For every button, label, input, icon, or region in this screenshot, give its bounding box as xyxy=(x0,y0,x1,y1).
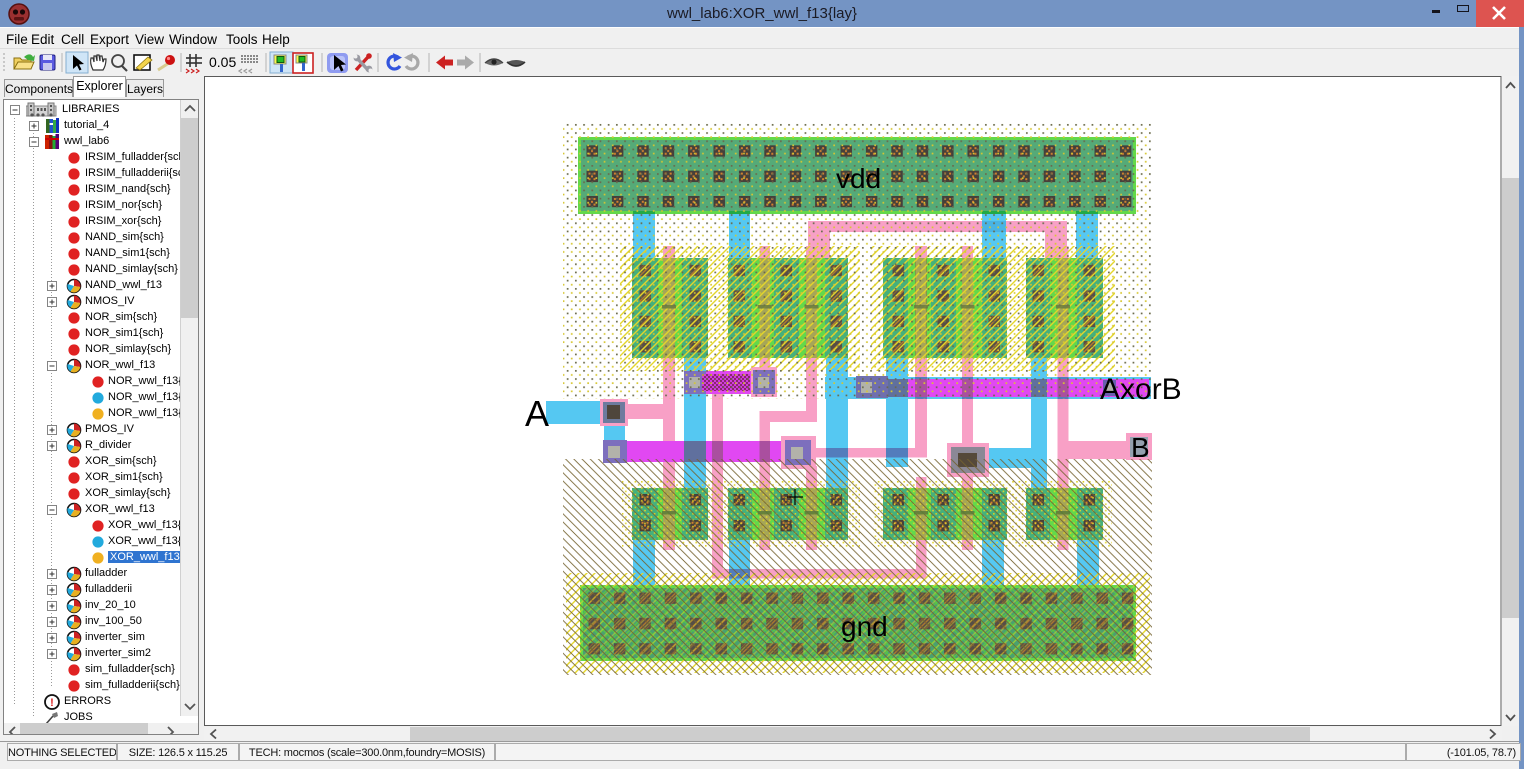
svg-text:B: B xyxy=(1131,432,1150,463)
svg-text:vdd: vdd xyxy=(836,163,881,194)
svg-text:A: A xyxy=(525,393,549,434)
svg-text:0.05: 0.05 xyxy=(209,54,236,70)
svg-text:AxorB: AxorB xyxy=(1100,373,1182,406)
svg-text:!: ! xyxy=(50,697,54,709)
svg-text:gnd: gnd xyxy=(841,611,888,642)
